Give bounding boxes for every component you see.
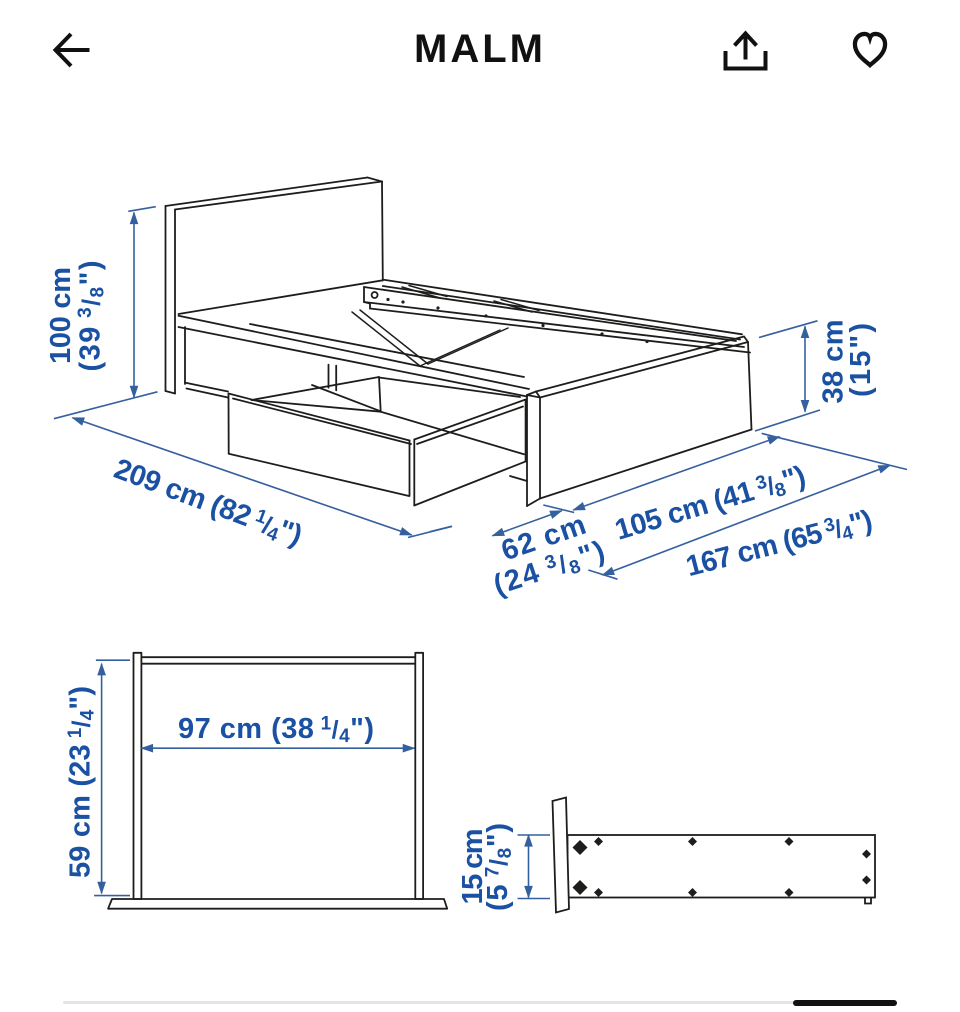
svg-text:(15"): (15")	[845, 323, 877, 397]
svg-text:100 cm: 100 cm	[45, 267, 77, 364]
svg-text:59 cm (23 1/4"): 59 cm (23 1/4")	[65, 686, 99, 878]
svg-text:(5 7/8"): (5 7/8")	[482, 823, 516, 911]
svg-text:209 cm (82 1/4"): 209 cm (82 1/4")	[109, 453, 306, 554]
svg-text:97 cm (38 1/4"): 97 cm (38 1/4")	[178, 713, 374, 747]
svg-text:(39 3/8"): (39 3/8")	[75, 261, 109, 372]
